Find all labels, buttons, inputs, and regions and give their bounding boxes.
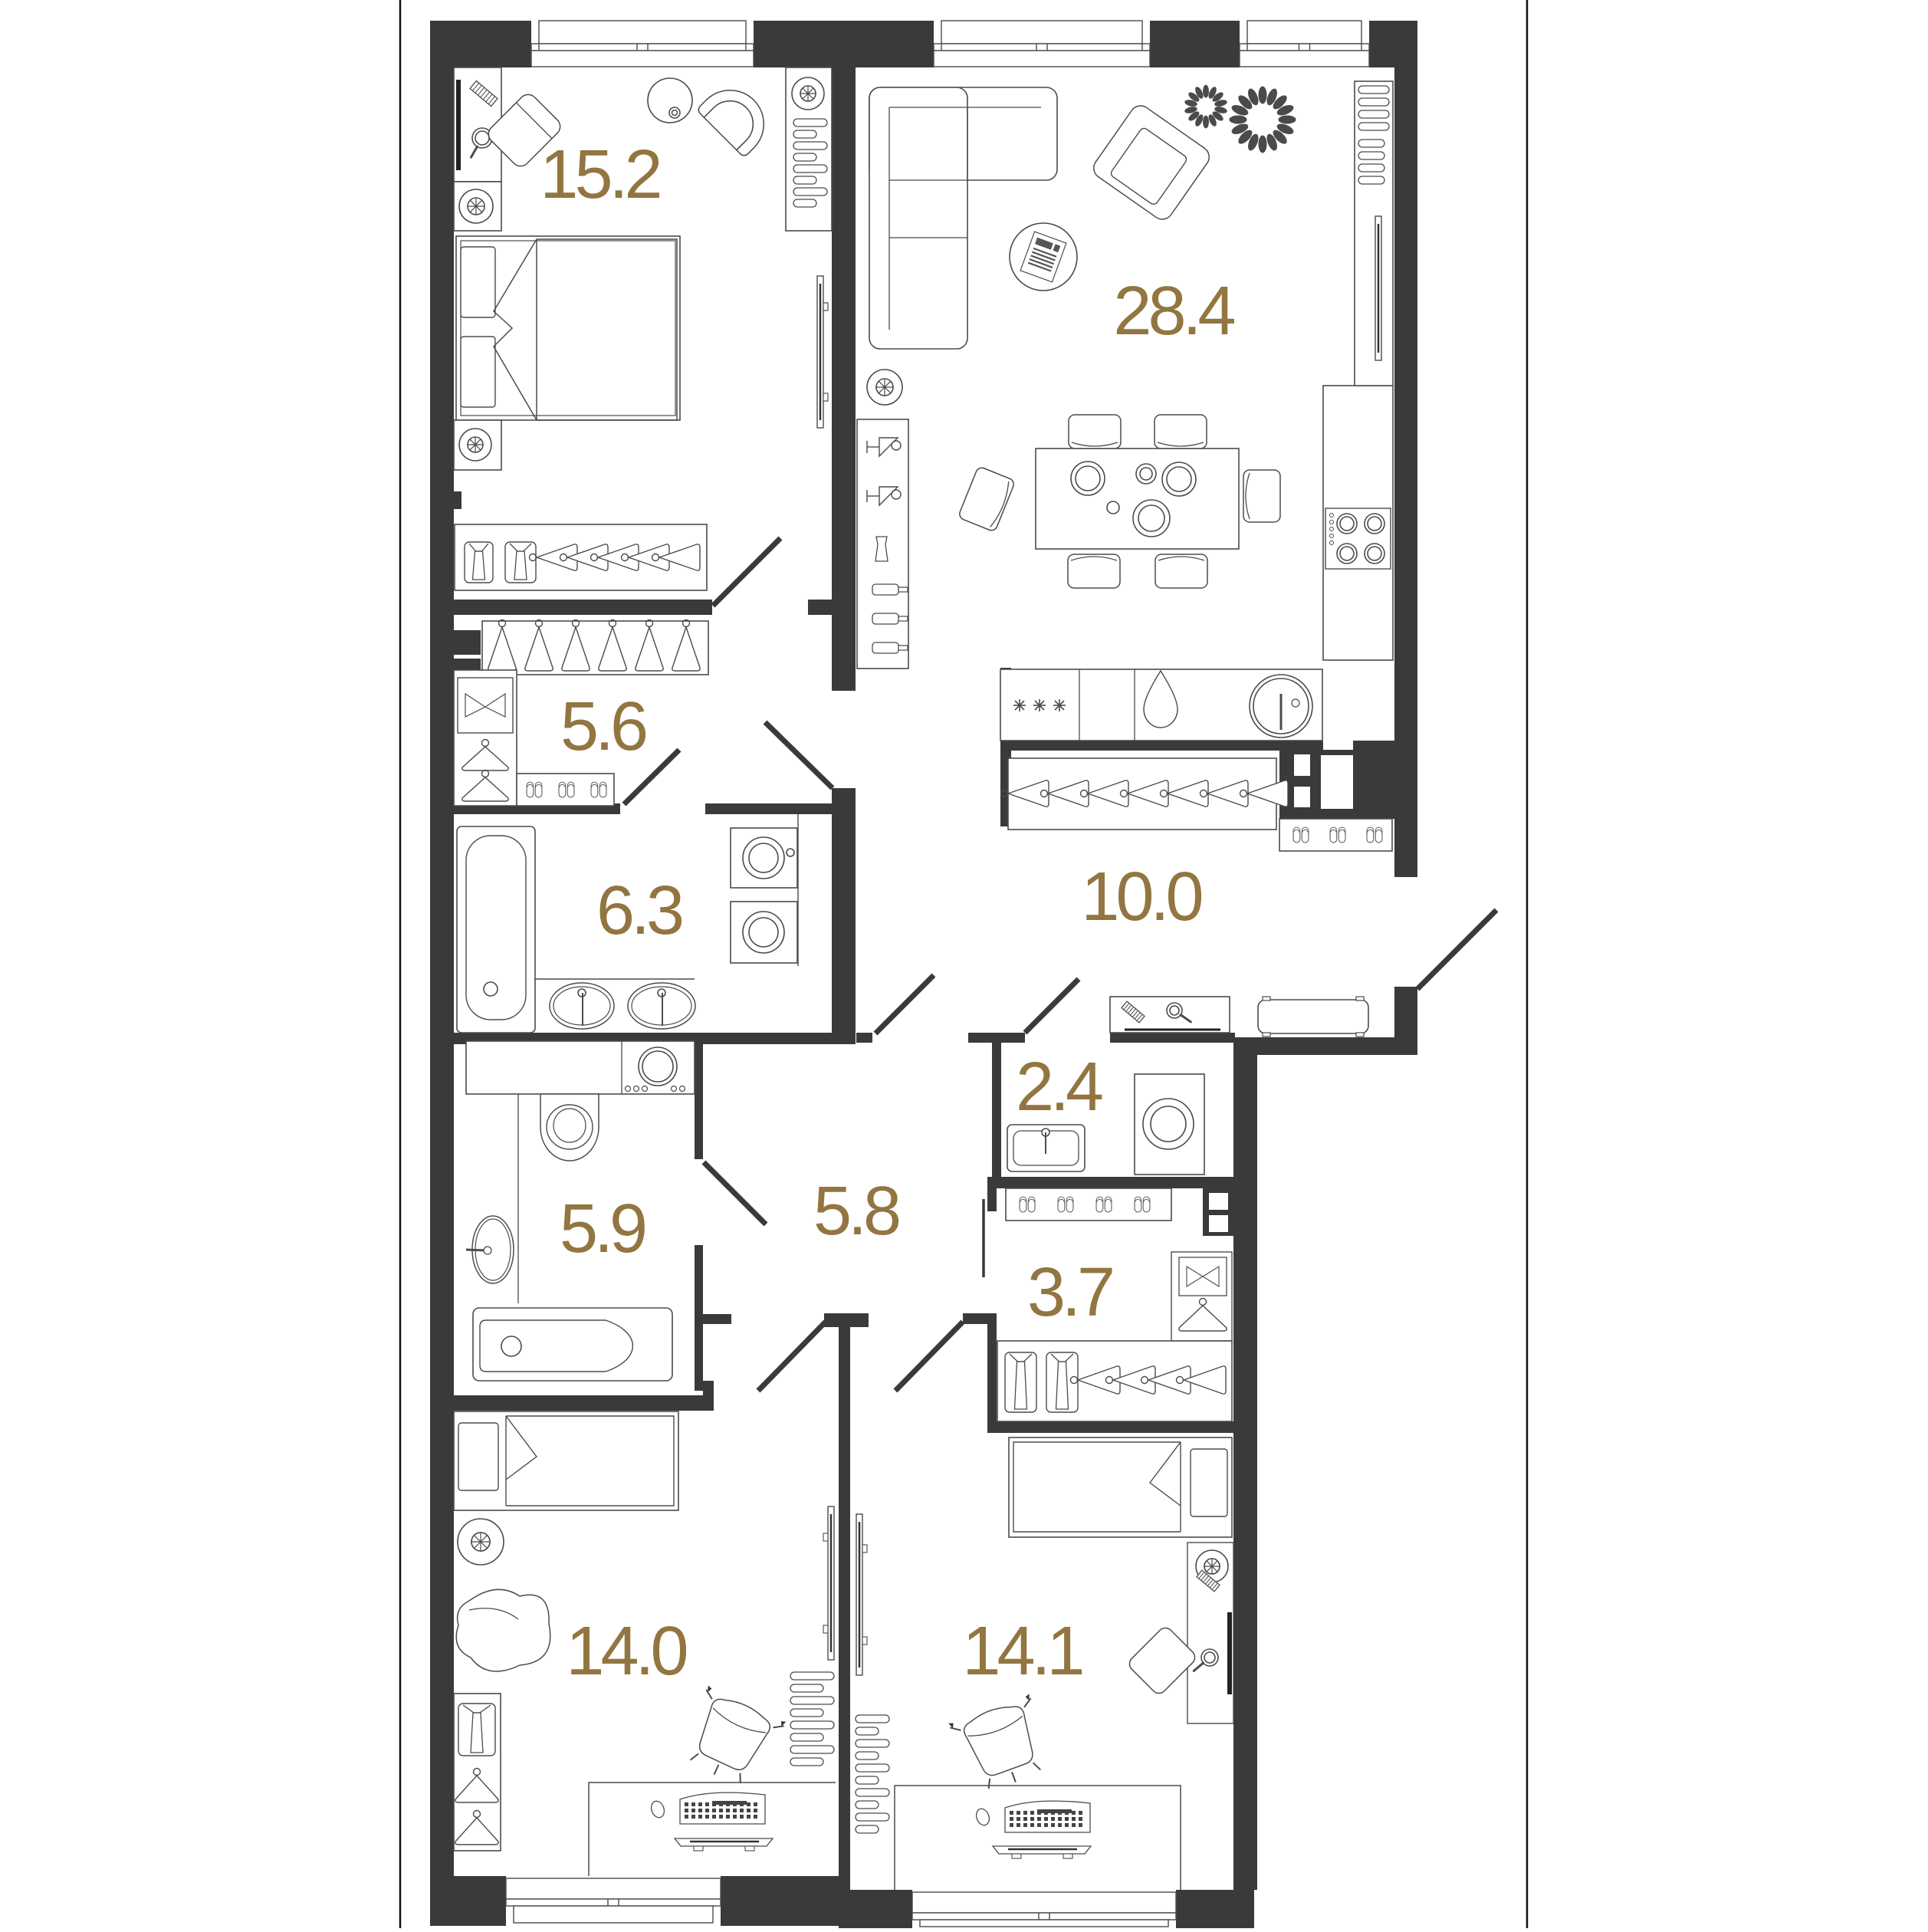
svg-text:28.4: 28.4 bbox=[1113, 273, 1234, 350]
svg-text:5.9: 5.9 bbox=[560, 1191, 645, 1267]
svg-text:15.2: 15.2 bbox=[540, 136, 659, 213]
svg-text:5.8: 5.8 bbox=[813, 1173, 899, 1250]
svg-text:5.6: 5.6 bbox=[560, 688, 646, 765]
svg-text:10.0: 10.0 bbox=[1081, 859, 1201, 935]
svg-text:3.7: 3.7 bbox=[1027, 1254, 1112, 1331]
svg-text:14.0: 14.0 bbox=[566, 1613, 686, 1690]
svg-text:2.4: 2.4 bbox=[1016, 1049, 1102, 1125]
svg-text:14.1: 14.1 bbox=[962, 1613, 1082, 1690]
svg-text:6.3: 6.3 bbox=[596, 872, 682, 949]
